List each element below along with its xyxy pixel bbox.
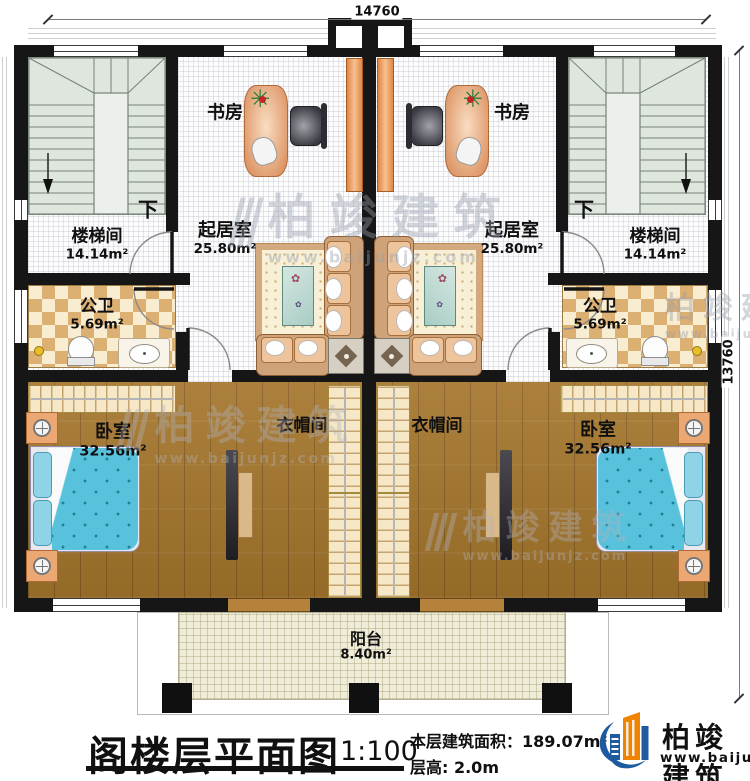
room-label-bath-left: 公卫 5.69m²: [70, 297, 123, 332]
room-label-bath-right: 公卫 5.69m²: [573, 297, 626, 332]
drawing-scale: 1:100: [340, 736, 418, 767]
room-label-stair-right: 楼梯间 14.14m²: [624, 227, 687, 262]
room-label-closet-left: 衣帽间: [277, 417, 328, 437]
room-label-stair-left: 楼梯间 14.14m²: [66, 227, 129, 262]
room-label-study-left: 书房: [207, 104, 243, 125]
floor-height-text: 层高: 2.0m: [410, 754, 499, 778]
floor-area-text: 本层建筑面积：189.07m²: [410, 728, 607, 752]
company-logo-icon: [596, 708, 656, 772]
dimension-line-right: [739, 50, 740, 698]
room-label-living-left: 起居室 25.80m²: [194, 221, 257, 257]
dimension-label-right: 13760: [722, 336, 737, 387]
company-logo-website: www.baijunjz.com: [660, 750, 750, 766]
dimension-label-top: 14760: [351, 5, 402, 20]
room-label-study-right: 书房: [494, 104, 530, 125]
room-label-closet-right: 衣帽间: [412, 417, 463, 437]
room-label-balcony: 阳台 8.40m²: [340, 630, 391, 663]
room-label-bedroom-left: 卧室 32.56m²: [79, 422, 146, 459]
room-label-living-right: 起居室 25.80m²: [481, 221, 544, 257]
stair-down-label-right: 下: [574, 194, 594, 223]
stair-down-label-left: 下: [138, 194, 158, 223]
drawing-title: 阁楼层平面图: [88, 724, 340, 781]
room-label-bedroom-right: 卧室 32.56m²: [564, 420, 631, 457]
floor-plan-page: ✳ ✳ ✿ ✿: [0, 0, 750, 781]
company-logo-name: 柏竣建筑: [662, 716, 750, 781]
door-swings-overlay: [0, 0, 750, 781]
